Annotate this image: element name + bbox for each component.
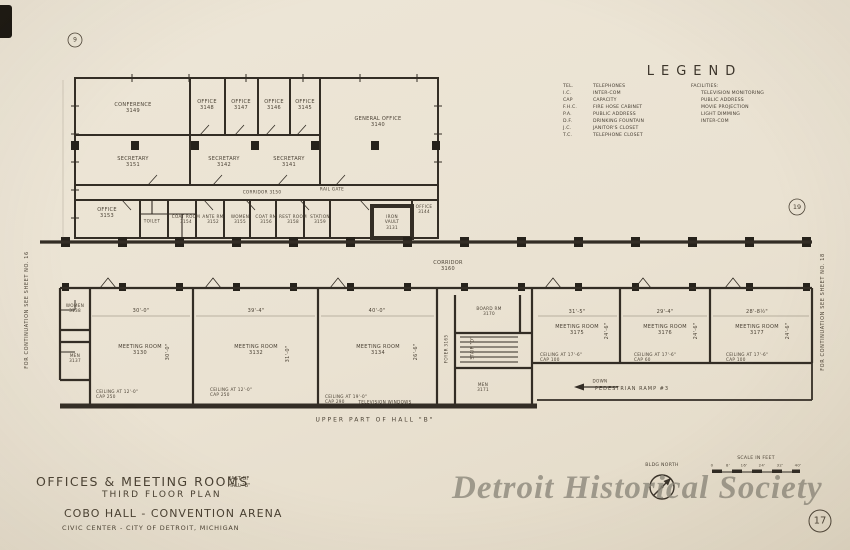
- legend-abbreviations: TEL.TELEPHONES I.C.INTER-COM CAPCAPACITY…: [563, 84, 691, 140]
- scale-tick: 0: [711, 464, 714, 469]
- room-label: BOARD RM 3170: [476, 306, 501, 317]
- dimension-label: 29'-4": [657, 309, 674, 315]
- drawing-title: OFFICES & MEETING ROOMS: [36, 474, 249, 489]
- room-label: SECRETARY 3141: [273, 156, 304, 169]
- room-label: WOMEN 3138: [66, 303, 84, 314]
- legend-desc: INTER-COM: [593, 91, 621, 98]
- scale-tick: 24': [759, 464, 766, 469]
- legend-abbr: J.C.: [563, 126, 593, 133]
- dimension-label: 30'-0": [165, 344, 171, 361]
- legend-abbr: F.H.C.: [563, 105, 593, 112]
- room-label: WOMEN 3155: [231, 214, 249, 225]
- room-label: TOILET: [144, 218, 160, 223]
- legend-abbr: D.F.: [563, 119, 593, 126]
- ceiling-note: CEILING AT 12'-0" CAP 250: [210, 387, 252, 398]
- corridor-label: CORRIDOR 3160: [433, 260, 463, 273]
- scale-tick: 32': [777, 464, 784, 469]
- scale-bar-label: SCALE IN FEET: [737, 456, 775, 462]
- dimension-label: 24'-6": [785, 323, 791, 340]
- legend: LEGEND TEL.TELEPHONES I.C.INTER-COM CAPC…: [563, 64, 798, 140]
- legend-desc: DRINKING FOUNTAIN: [593, 119, 644, 126]
- legend-desc: TELEPHONE CLOSET: [593, 133, 643, 140]
- rail-gate-label: RAIL GATE: [320, 186, 344, 191]
- dimension-label: 40'-0": [369, 308, 386, 314]
- watermark: Detroit Historical Society: [452, 470, 823, 507]
- legend-abbr: P.A.: [563, 112, 593, 119]
- grid-bubble-label: 19: [793, 203, 801, 211]
- dimension-label: 26'-6": [413, 344, 419, 361]
- room-label: MEETING ROOM 3132: [234, 344, 278, 357]
- room-label: COAT ROOM 3154: [172, 214, 200, 225]
- room-label: OFFICE 3147: [231, 99, 251, 112]
- room-label: OFFICE 3145: [295, 99, 315, 112]
- room-label: OFFICE 3153: [97, 207, 117, 220]
- legend-abbr: I.C.: [563, 91, 593, 98]
- dimension-label: 28'-8½": [746, 309, 768, 315]
- building-location: CIVIC CENTER - CITY OF DETROIT, MICHIGAN: [62, 524, 239, 532]
- ramp-note: PEDESTRIAN RAMP #3: [595, 386, 669, 392]
- legend-facility: MOVIE PROJECTION: [691, 105, 796, 112]
- room-label: MEETING ROOM 3175: [555, 324, 599, 337]
- room-label: IRON VAULT 3131: [385, 214, 399, 230]
- down-note: DOWN: [593, 378, 608, 383]
- legend-desc: PUBLIC ADDRESS: [593, 112, 636, 119]
- dimension-label: 24'-6": [693, 323, 699, 340]
- legend-desc: JANITOR'S CLOSET: [593, 126, 639, 133]
- scale-tick: 8': [726, 464, 730, 469]
- tv-windows-note: TELEVISION WINDOWS: [358, 399, 411, 404]
- legend-facility: PUBLIC ADDRESS: [691, 98, 796, 105]
- room-label: REST ROOM 3158: [279, 214, 307, 225]
- room-label: MEETING ROOM 3134: [356, 344, 400, 357]
- lower-plan-walls: [60, 288, 812, 406]
- grid-bubble-label: 9: [73, 37, 77, 44]
- hall-note: UPPER PART OF HALL "B": [315, 416, 434, 424]
- room-label: SECRETARY 3151: [117, 156, 148, 169]
- dimension-label: 31'-0": [285, 346, 291, 363]
- legend-facilities: FACILITIES: TELEVISION MONITORING PUBLIC…: [691, 84, 796, 140]
- room-label: MEN 3137: [69, 353, 81, 364]
- room-label: OFFICE 3148: [197, 99, 217, 112]
- room-label: COAT RM 3156: [255, 214, 276, 225]
- stair-label: STAIR "D": [469, 336, 474, 359]
- legend-abbr: CAP: [563, 98, 593, 105]
- compass-label: BLDG NORTH: [645, 463, 678, 469]
- room-label: ANTE RM 3152: [202, 214, 223, 225]
- room-label: MEETING ROOM 3176: [643, 324, 687, 337]
- drawing-subtitle: THIRD FLOOR PLAN: [102, 490, 222, 500]
- ceiling-note: CEILING AT 17'-6" CAP 100: [726, 352, 768, 363]
- room-label: STATION 3159: [310, 214, 330, 225]
- room-label: CONFERENCE 3149: [114, 102, 151, 115]
- legend-desc: TELEPHONES: [593, 84, 625, 91]
- ceiling-note: CEILING AT 17'-6" CAP 60: [634, 352, 676, 363]
- room-label: FOYER 3165: [443, 335, 448, 364]
- legend-abbr: TEL.: [563, 84, 593, 91]
- legend-facility: LIGHT DIMMING: [691, 112, 796, 119]
- continuation-note-right: FOR CONTINUATION SEE SHEET NO. 18: [820, 253, 826, 371]
- door-swings-lower: [100, 278, 741, 288]
- ceiling-note: CEILING AT 17'-6" CAP 100: [540, 352, 582, 363]
- building-name: COBO HALL - CONVENTION ARENA: [64, 507, 282, 520]
- legend-desc: CAPACITY: [593, 98, 617, 105]
- scale-tick: 40': [795, 464, 802, 469]
- room-label: MEN 3171: [477, 382, 489, 393]
- dimension-label: 31'-5": [569, 309, 586, 315]
- sheet-number: 17: [814, 516, 827, 527]
- legend-title: LEGEND: [591, 64, 798, 79]
- legend-facilities-title: FACILITIES:: [691, 84, 796, 91]
- legend-abbr: T.C.: [563, 133, 593, 140]
- room-label: MEETING ROOM 3130: [118, 344, 162, 357]
- door-swings-upper: [122, 125, 369, 210]
- scanned-blueprint-page: LEGEND TEL.TELEPHONES I.C.INTER-COM CAPC…: [0, 0, 850, 550]
- dimension-label: 30'-0": [133, 308, 150, 314]
- drawing-title-qualifier: EAST OF HALL "B": [228, 476, 250, 489]
- room-label: OFFICE 3144: [416, 204, 433, 215]
- room-label: OFFICE 3146: [264, 99, 284, 112]
- room-label: SECRETARY 3142: [208, 156, 239, 169]
- dimension-label: 39'-4": [248, 308, 265, 314]
- corridor-label: CORRIDOR 3150: [243, 189, 282, 194]
- continuation-note-left: FOR CONTINUATION SEE SHEET NO. 16: [24, 251, 30, 369]
- room-label: MEETING ROOM 3177: [735, 324, 779, 337]
- dimension-label: 24'-6": [604, 323, 610, 340]
- room-label: GENERAL OFFICE 3140: [354, 116, 401, 129]
- legend-facility: INTER-COM: [691, 119, 796, 126]
- legend-desc: FIRE HOSE CABINET: [593, 105, 642, 112]
- legend-facility: TELEVISION MONITORING: [691, 91, 796, 98]
- scale-tick: 16': [741, 464, 748, 469]
- ceiling-note: CEILING AT 12'-0" CAP 250: [96, 389, 138, 400]
